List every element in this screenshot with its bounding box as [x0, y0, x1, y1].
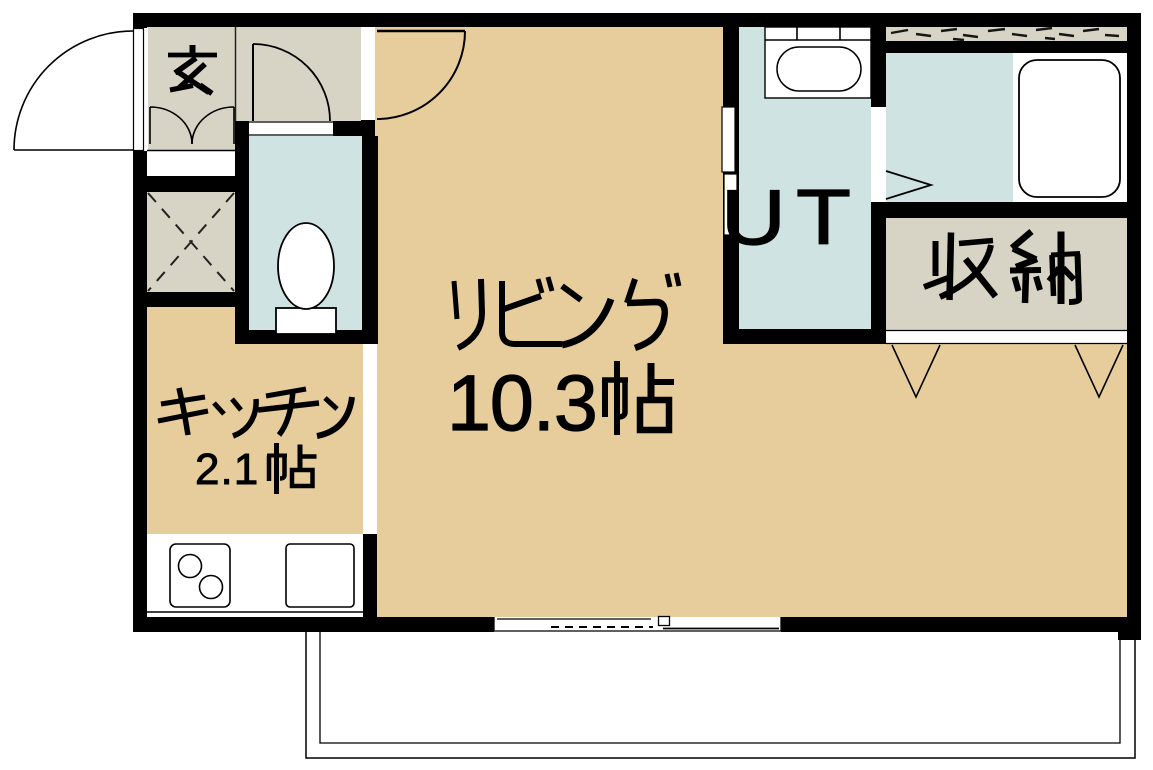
svg-text:10.3: 10.3 [447, 358, 597, 447]
svg-text:UT: UT [721, 173, 861, 260]
svg-text:2.1: 2.1 [195, 445, 259, 494]
